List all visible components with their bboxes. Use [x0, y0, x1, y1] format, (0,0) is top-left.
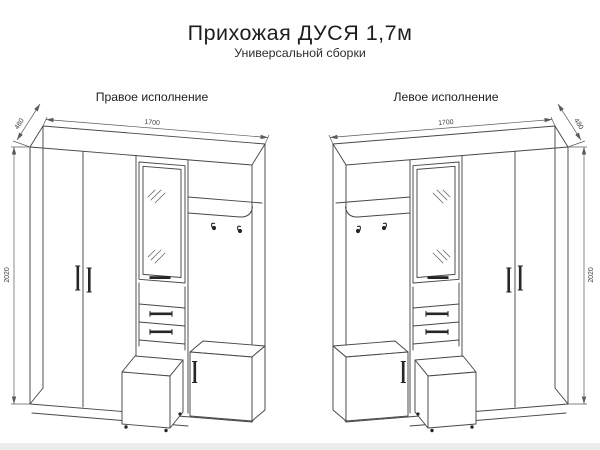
furniture-drawing-left-version	[329, 104, 587, 432]
left-version-label: Левое исполнение	[393, 90, 498, 104]
page-title: Прихожая ДУСЯ 1,7м	[188, 21, 413, 45]
height-dimension: 2020	[588, 267, 595, 282]
bottom-shadow-strip	[0, 443, 600, 450]
height-dimension: 2020	[4, 267, 11, 282]
width-dimension: 1700	[438, 119, 454, 127]
furniture-drawing-right-version	[11, 104, 269, 432]
assembly-diagram-canvas: Прихожая ДУСЯ 1,7м Универсальной сборки …	[0, 0, 600, 450]
furniture-assembly-sheet: Прихожая ДУСЯ 1,7м Универсальной сборки …	[0, 0, 600, 450]
page-subtitle: Универсальной сборки	[234, 46, 366, 60]
right-version-label: Правое исполнение	[96, 90, 209, 104]
width-dimension: 1700	[144, 119, 160, 127]
